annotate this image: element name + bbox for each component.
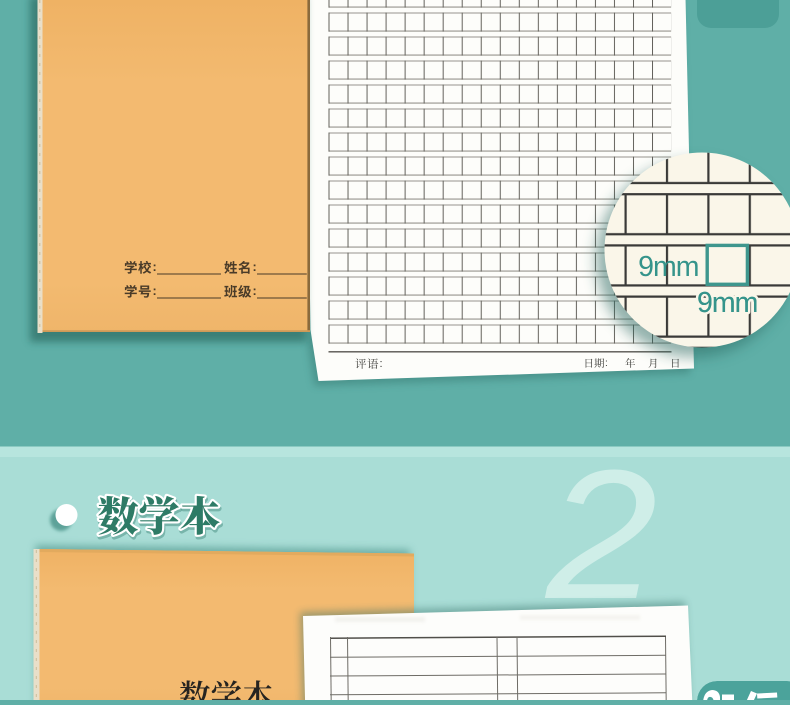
svg-text::: :	[253, 260, 257, 274]
svg-text::: :	[253, 284, 257, 298]
svg-text::: :	[380, 358, 383, 370]
svg-text::: :	[153, 260, 157, 274]
svg-text:9mm: 9mm	[697, 287, 757, 319]
svg-text::: :	[605, 358, 608, 369]
svg-text:9mm: 9mm	[638, 251, 698, 283]
svg-text::: :	[153, 284, 157, 298]
